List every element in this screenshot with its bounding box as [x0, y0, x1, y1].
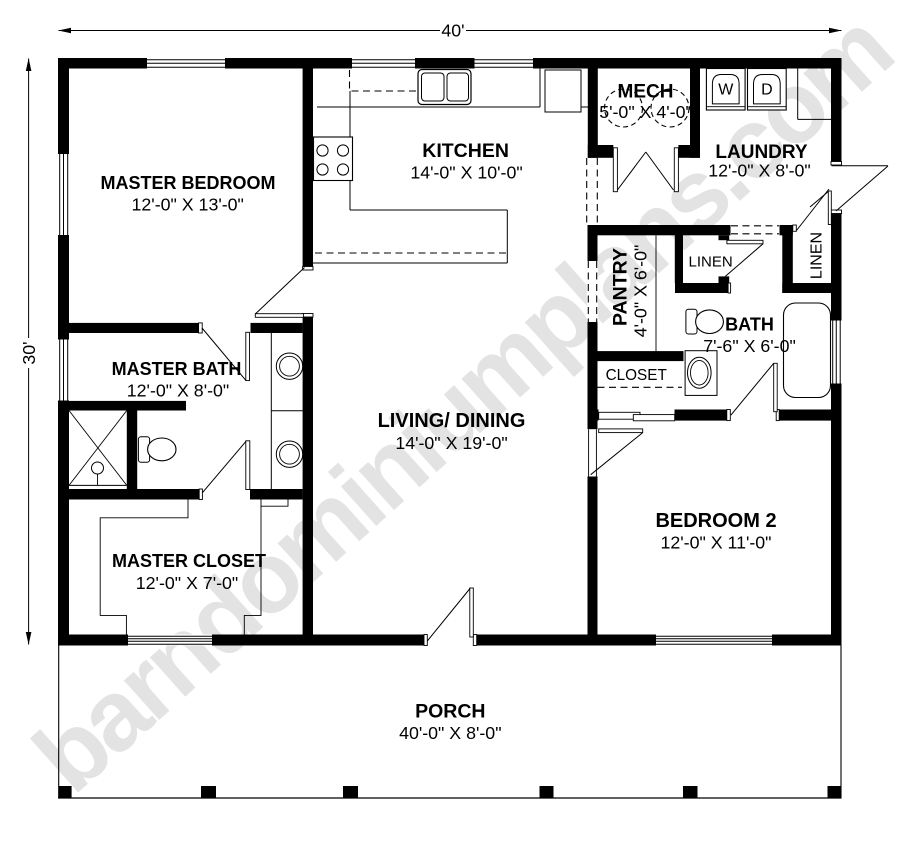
svg-text:W: W	[718, 82, 734, 99]
svg-text:12'-0" X 7'-0": 12'-0" X 7'-0"	[136, 573, 238, 593]
svg-text:BEDROOM 2: BEDROOM 2	[655, 510, 776, 532]
svg-text:5'-0" X 4'-0": 5'-0" X 4'-0"	[599, 102, 692, 122]
svg-text:BATH: BATH	[725, 314, 774, 334]
svg-text:14'-0" X 10'-0": 14'-0" X 10'-0"	[410, 163, 522, 183]
svg-text:40': 40'	[441, 21, 464, 41]
svg-text:MECH: MECH	[618, 81, 674, 102]
svg-text:12'-0" X 11'-0": 12'-0" X 11'-0"	[660, 533, 771, 553]
svg-text:PANTRY: PANTRY	[610, 248, 632, 326]
svg-text:12'-0" X 8'-0": 12'-0" X 8'-0"	[708, 161, 810, 181]
svg-text:40'-0" X 8'-0": 40'-0" X 8'-0"	[399, 723, 501, 743]
svg-text:12'-0" X 8'-0": 12'-0" X 8'-0"	[127, 381, 229, 401]
svg-text:LINEN: LINEN	[689, 253, 733, 270]
svg-text:D: D	[761, 82, 773, 99]
svg-text:MASTER CLOSET: MASTER CLOSET	[112, 551, 266, 571]
svg-text:4'-0" X 6'-0": 4'-0" X 6'-0"	[631, 245, 651, 338]
svg-text:LIVING/ DINING: LIVING/ DINING	[378, 410, 526, 432]
svg-text:7'-6" X 6'-0": 7'-6" X 6'-0"	[703, 336, 796, 356]
svg-text:LINEN: LINEN	[809, 232, 826, 279]
svg-text:CLOSET: CLOSET	[606, 367, 667, 384]
svg-text:14'-0" X 19'-0": 14'-0" X 19'-0"	[395, 433, 507, 453]
svg-text:KITCHEN: KITCHEN	[422, 140, 509, 162]
svg-text:PORCH: PORCH	[415, 700, 485, 722]
svg-text:MASTER BATH: MASTER BATH	[112, 359, 242, 379]
svg-text:30': 30'	[19, 341, 39, 364]
svg-text:12'-0" X 13'-0": 12'-0" X 13'-0"	[132, 194, 244, 214]
svg-text:MASTER BEDROOM: MASTER BEDROOM	[101, 173, 276, 193]
